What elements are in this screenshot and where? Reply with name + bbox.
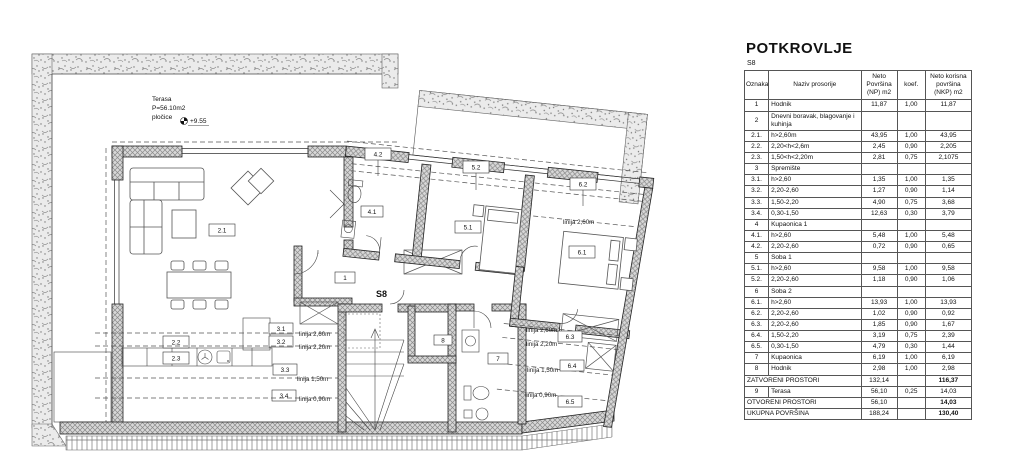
table-cell: 188,24 (861, 408, 897, 419)
room-label: 4.2 (365, 148, 391, 160)
table-cell: 2.2. (745, 141, 769, 152)
table-row: 2.2.2,20<h<2,6m2,450,902,205 (745, 141, 972, 152)
table-cell: Hodnik (769, 364, 861, 375)
table-cell: 0,90 (897, 186, 925, 197)
table-cell: 0,25 (897, 386, 925, 397)
table-row: 2Dnevni boravak, blagovanje i kuhinja (745, 111, 972, 130)
table-header-row: Oznaka Naziv prosorije Neto Površina (NP… (745, 71, 972, 100)
room-label: 3.2 (269, 336, 293, 347)
table-row: UKUPNA POVRŠINA188,24130,40 (745, 408, 972, 419)
table-cell: 5.1. (745, 264, 769, 275)
table-row: 5.2.2,20-2,601,180,901,06 (745, 275, 972, 286)
sink-icon (464, 408, 488, 420)
table-cell: 6.1. (745, 297, 769, 308)
table-cell: 0,30-1,50 (769, 208, 861, 219)
linija-label: linija 2,20m (299, 344, 330, 351)
area-table-panel: POTKROVLJE S8 Oznaka Naziv prosorije Net… (744, 40, 976, 420)
table-cell: 1,00 (897, 230, 925, 241)
label-6-3: 6.3 (566, 334, 575, 341)
table-cell: 9,58 (925, 264, 971, 275)
col-koef: koef. (897, 71, 925, 100)
linija-label: linija 1,50m (527, 367, 558, 374)
interior-walls (294, 157, 526, 432)
table-row: 3.4.0,30-1,5012,630,303,79 (745, 208, 972, 219)
table-cell (925, 286, 971, 297)
table-row: 5Soba 1 (745, 253, 972, 264)
table-cell: 13,93 (925, 297, 971, 308)
table-cell: Kupaonica (769, 353, 861, 364)
table-cell: 43,95 (925, 130, 971, 141)
label-6-5: 6.5 (566, 399, 575, 406)
room-label: 6.2 (570, 178, 596, 190)
unit-subtitle: S8 (747, 60, 976, 67)
table-cell: 1,27 (861, 186, 897, 197)
table-cell (897, 253, 925, 264)
table-cell: 3,19 (861, 331, 897, 342)
table-cell: Kupaonica 1 (769, 219, 861, 230)
label-8: 8 (441, 338, 445, 345)
room-label: 6.4 (560, 360, 584, 371)
table-cell: 132,14 (861, 375, 897, 386)
table-cell: 3,79 (925, 208, 971, 219)
table-cell: 1,06 (925, 275, 971, 286)
table-row: 3.2.2,20-2,601,270,901,14 (745, 186, 972, 197)
table-cell: 6.3. (745, 319, 769, 330)
table-cell: h>2,60 (769, 230, 861, 241)
table-cell: 1,00 (897, 264, 925, 275)
toilet-icon (464, 386, 489, 400)
table-cell: 2,20-2,60 (769, 319, 861, 330)
table-cell: 3.1. (745, 175, 769, 186)
terrace-floor-texture (54, 352, 111, 422)
kitchen-counter (122, 318, 272, 366)
table-cell: 1,00 (897, 353, 925, 364)
table-cell: 6 (745, 286, 769, 297)
table-cell (897, 111, 925, 130)
table-cell: ZATVORENI PROSTORI (745, 375, 862, 386)
table-row: 6.4.1,50-2,203,190,752,39 (745, 331, 972, 342)
table-row: 6.1.h>2,6013,931,0013,93 (745, 297, 972, 308)
room-label: 5.2 (463, 161, 489, 173)
label-2-2: 2.2 (172, 340, 181, 347)
table-cell (925, 164, 971, 175)
table-cell: 3.2. (745, 186, 769, 197)
table-cell: 9,58 (861, 264, 897, 275)
room-label: 3.3 (273, 364, 297, 375)
table-cell: h>2,60 (769, 264, 861, 275)
table-cell: 1,00 (897, 364, 925, 375)
table-cell: 1,00 (897, 130, 925, 141)
door-arcs (294, 250, 491, 328)
table-cell: 2,20<h<2,6m (769, 141, 861, 152)
linija-label: linija 2,60m (563, 219, 594, 226)
table-cell: 5 (745, 253, 769, 264)
room-label: 6.1 (569, 246, 595, 258)
linija-label: linija 2,60m (299, 331, 330, 338)
table-cell: 1,67 (925, 319, 971, 330)
table-cell: 43,95 (861, 130, 897, 141)
table-cell: 1,18 (861, 275, 897, 286)
table-cell: 3.3. (745, 197, 769, 208)
room-label: 7 (488, 353, 508, 364)
table-cell: 0,65 (925, 242, 971, 253)
table-cell: 5,48 (925, 230, 971, 241)
table-row: 4.2.2,20-2,600,720,900,65 (745, 242, 972, 253)
table-cell (925, 253, 971, 264)
table-cell: 2,81 (861, 153, 897, 164)
bed-room6 (558, 231, 637, 290)
table-cell: 3 (745, 164, 769, 175)
table-cell: 1,00 (897, 175, 925, 186)
elevation-marker-icon (181, 118, 188, 125)
table-row: 1Hodnik11,871,0011,87 (745, 100, 972, 111)
table-cell: 2,20-2,60 (769, 242, 861, 253)
page-title: POTKROVLJE (746, 40, 976, 57)
table-row: 9Terasa56,100,2514,03 (745, 386, 972, 397)
table-cell: OTVORENI PROSTORI (745, 397, 862, 408)
table-cell: 56,10 (861, 397, 897, 408)
coffee-table (172, 210, 196, 238)
table-cell (925, 111, 971, 130)
table-cell: 130,40 (925, 408, 971, 419)
col-oznaka: Oznaka (745, 71, 769, 100)
table-cell (897, 286, 925, 297)
table-row: 3.3.1,50-2,204,900,753,68 (745, 197, 972, 208)
label-2-3: 2.3 (172, 356, 181, 363)
label-5-1: 5.1 (464, 225, 473, 232)
terrace-label: Terasa P=56.10m2 pločice +9.55 (152, 96, 209, 126)
label-6-4: 6.4 (568, 363, 577, 370)
table-cell: 1,02 (861, 308, 897, 319)
table-cell: 0,72 (861, 242, 897, 253)
table-cell: h>2,60 (769, 175, 861, 186)
table-cell: 2.1. (745, 130, 769, 141)
table-cell: 2,39 (925, 331, 971, 342)
table-cell (861, 164, 897, 175)
table-row: ZATVORENI PROSTORI132,14116,37 (745, 375, 972, 386)
terrace-area: P=56.10m2 (152, 105, 186, 112)
bed-room5 (467, 205, 521, 274)
room-label: 6.5 (558, 396, 582, 407)
table-row: 7Kupaonica6,191,006,19 (745, 353, 972, 364)
staircase (344, 314, 404, 430)
col-nkp: Neto korisna površina (NKP) m2 (925, 71, 971, 100)
table-cell: 2,205 (925, 141, 971, 152)
table-cell: 0,90 (897, 275, 925, 286)
linija-label: linija 0,90m (299, 396, 330, 403)
table-cell: Spremište (769, 164, 861, 175)
table-cell: 0,90 (897, 308, 925, 319)
table-cell (897, 164, 925, 175)
linija-label: linija 2,60m (526, 327, 557, 334)
table-cell: h>2,60m (769, 130, 861, 141)
unit-label: S8 (376, 289, 387, 299)
table-cell: 1 (745, 100, 769, 111)
table-row: 4.1.h>2,605,481,005,48 (745, 230, 972, 241)
bathroom7-fixtures (462, 330, 489, 420)
terrace-name: Terasa (152, 96, 172, 103)
table-cell: 1,14 (925, 186, 971, 197)
table-cell: 6,19 (925, 353, 971, 364)
table-cell (897, 219, 925, 230)
bedroom-wing (320, 83, 660, 429)
table-row: 3Spremište (745, 164, 972, 175)
linija-label: linija 0,90m (525, 392, 556, 399)
table-cell: 0,75 (897, 153, 925, 164)
table-row: 6Soba 2 (745, 286, 972, 297)
table-cell: 11,87 (861, 100, 897, 111)
table-cell: 1,85 (861, 319, 897, 330)
table-cell (925, 219, 971, 230)
table-cell: 1,50-2,20 (769, 197, 861, 208)
area-table: Oznaka Naziv prosorije Neto Površina (NP… (744, 70, 972, 420)
label-3-2: 3.2 (277, 339, 286, 346)
table-cell: 1,00 (897, 297, 925, 308)
room-label: 2.1 (209, 224, 235, 236)
terrace-finish: pločice (152, 114, 173, 121)
table-cell: 2,98 (861, 364, 897, 375)
cooktop-icon (198, 350, 212, 364)
table-cell: 6.4. (745, 331, 769, 342)
linija-label: linija 1,50m (297, 376, 328, 383)
table-cell: 4,79 (861, 342, 897, 353)
table-cell: 3,68 (925, 197, 971, 208)
table-cell: Soba 1 (769, 253, 861, 264)
table-cell: 0,30 (897, 342, 925, 353)
room-label: 2.3 (163, 352, 189, 364)
table-cell: 9 (745, 386, 769, 397)
table-cell: 0,90 (897, 141, 925, 152)
table-cell: 6.5. (745, 342, 769, 353)
table-cell: 2.3. (745, 153, 769, 164)
table-row: 2.3.1,50<h<2,20m2,810,752,1075 (745, 153, 972, 164)
linija-label: linija 2,20m (526, 341, 557, 348)
armchair (231, 168, 274, 205)
table-cell: 1,35 (861, 175, 897, 186)
table-cell (861, 286, 897, 297)
table-cell: 1,44 (925, 342, 971, 353)
table-row: OTVORENI PROSTORI56,1014,03 (745, 397, 972, 408)
table-cell: 1,50-2,20 (769, 331, 861, 342)
table-row: 3.1.h>2,601,351,001,35 (745, 175, 972, 186)
room-label: 3.1 (269, 323, 293, 334)
table-row: 6.3.2,20-2,601,850,901,67 (745, 319, 972, 330)
table-cell: 2,20-2,60 (769, 308, 861, 319)
table-row: 5.1.h>2,609,581,009,58 (745, 264, 972, 275)
room-label: 6.3 (558, 331, 582, 342)
table-cell (861, 111, 897, 130)
table-cell: 12,63 (861, 208, 897, 219)
table-cell: 2 (745, 111, 769, 130)
table-row: 8Hodnik2,981,002,98 (745, 364, 972, 375)
area-table-body: 1Hodnik11,871,0011,872Dnevni boravak, bl… (745, 100, 972, 420)
table-row: 6.2.2,20-2,601,020,900,92 (745, 308, 972, 319)
table-cell: 116,37 (925, 375, 971, 386)
table-cell (861, 219, 897, 230)
table-cell: UKUPNA POVRŠINA (745, 408, 862, 419)
label-4-1: 4.1 (368, 209, 377, 216)
table-cell: 4.1. (745, 230, 769, 241)
table-cell: 7 (745, 353, 769, 364)
table-cell: 4 (745, 219, 769, 230)
table-cell: 56,10 (861, 386, 897, 397)
table-row: 4Kupaonica 1 (745, 219, 972, 230)
table-cell: 1,00 (897, 100, 925, 111)
table-cell: 8 (745, 364, 769, 375)
table-cell: Terasa (769, 386, 861, 397)
table-cell: 0,75 (897, 197, 925, 208)
table-cell: 0,75 (897, 331, 925, 342)
elevation-value: +9.55 (190, 118, 207, 125)
room-label: 5.1 (455, 221, 481, 233)
table-cell: Hodnik (769, 100, 861, 111)
attic-floor-plan-sheet: Terasa P=56.10m2 pločice +9.55 (0, 0, 1024, 472)
table-cell: 1,35 (925, 175, 971, 186)
table-cell: 2,20-2,60 (769, 275, 861, 286)
table-cell: h>2,60 (769, 297, 861, 308)
label-2-1: 2.1 (218, 228, 227, 235)
table-cell: 0,90 (897, 319, 925, 330)
dining-table-and-chairs (167, 261, 231, 309)
table-cell: 5,48 (861, 230, 897, 241)
table-cell: 0,30 (897, 208, 925, 219)
table-cell: 14,03 (925, 397, 971, 408)
sink-icon (217, 351, 230, 363)
table-cell: 4.2. (745, 242, 769, 253)
table-cell (897, 408, 925, 419)
table-cell: 6.2. (745, 308, 769, 319)
table-cell: 0,92 (925, 308, 971, 319)
table-cell: 0,30-1,50 (769, 342, 861, 353)
table-cell: 13,93 (861, 297, 897, 308)
table-cell: 5.2. (745, 275, 769, 286)
table-cell: 4,90 (861, 197, 897, 208)
table-cell: 3.4. (745, 208, 769, 219)
table-cell (897, 397, 925, 408)
table-cell: 6,19 (861, 353, 897, 364)
label-7: 7 (496, 356, 500, 363)
table-row: 6.5.0,30-1,504,790,301,44 (745, 342, 972, 353)
label-5-2: 5.2 (472, 165, 481, 172)
table-cell: Soba 2 (769, 286, 861, 297)
table-cell (861, 253, 897, 264)
label-3-3: 3.3 (281, 367, 290, 374)
label-6-2: 6.2 (579, 182, 588, 189)
table-cell: Dnevni boravak, blagovanje i kuhinja (769, 111, 861, 130)
label-3-4: 3.4 (280, 393, 289, 400)
table-cell: 2,1075 (925, 153, 971, 164)
room-label: 4.1 (361, 206, 383, 217)
floor-plan-drawing: Terasa P=56.10m2 pločice +9.55 (0, 0, 744, 472)
label-4-2: 4.2 (374, 152, 383, 159)
room-label: 8 (434, 335, 452, 345)
label-1: 1 (343, 275, 347, 282)
col-naziv: Naziv prosorije (769, 71, 861, 100)
table-cell: 11,87 (925, 100, 971, 111)
col-np: Neto Površina (NP) m2 (861, 71, 897, 100)
label-3-1: 3.1 (277, 326, 286, 333)
table-cell: 2,20-2,60 (769, 186, 861, 197)
table-cell: 0,90 (897, 242, 925, 253)
table-cell (897, 375, 925, 386)
table-row: 2.1.h>2,60m43,951,0043,95 (745, 130, 972, 141)
room-label: 3.4 (272, 390, 296, 401)
room-label: 1 (335, 272, 355, 283)
table-cell: 2,98 (925, 364, 971, 375)
table-cell: 1,50<h<2,20m (769, 153, 861, 164)
label-6-1: 6.1 (578, 250, 587, 257)
table-cell: 14,03 (925, 386, 971, 397)
table-cell: 2,45 (861, 141, 897, 152)
